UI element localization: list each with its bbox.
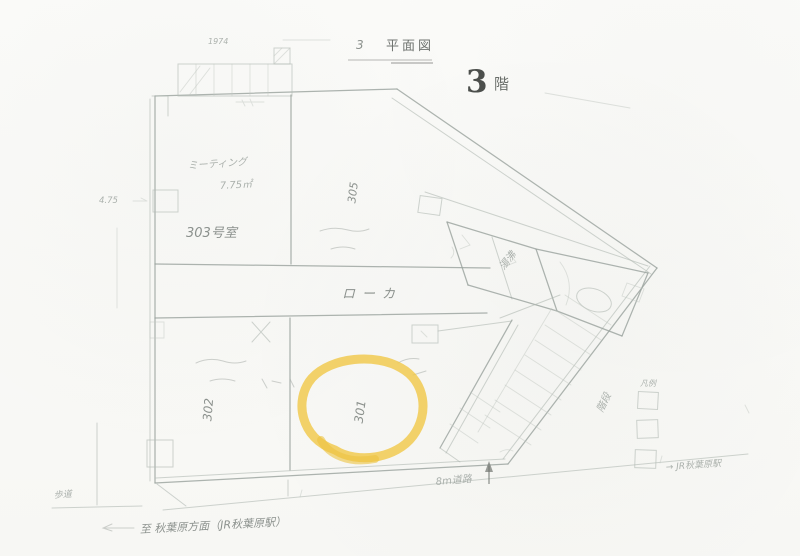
road-width-label: 8m道路 bbox=[435, 473, 473, 488]
entrance-arrow bbox=[485, 450, 513, 484]
text-labels: 3 平面図 3 階 303号室 305 ローカ 302 301 ミーティング 7… bbox=[53, 37, 723, 536]
meeting-note-line2: 7.75㎡ bbox=[220, 178, 255, 192]
road-boundary bbox=[52, 198, 748, 510]
floor-suffix-label: 階 bbox=[494, 75, 509, 93]
legend-boxes bbox=[635, 391, 749, 468]
stairs-label: 階段 bbox=[594, 390, 614, 414]
dimension-left-label: 4.75 bbox=[99, 196, 118, 206]
floor-number-label: 3 bbox=[466, 64, 488, 100]
toilet-bowl-shape bbox=[573, 284, 614, 317]
room-305-label: 305 bbox=[345, 181, 360, 203]
illegible-handwriting-scribbles bbox=[103, 93, 630, 531]
scanned-floor-plan-page: 3 平面図 3 階 303号室 305 ローカ 302 301 ミーティング 7… bbox=[0, 0, 800, 556]
corridor-label: ローカ bbox=[342, 287, 402, 302]
arrow-head-icon bbox=[485, 461, 493, 472]
room-302-label: 302 bbox=[200, 398, 216, 422]
staircase bbox=[440, 295, 611, 462]
floor-plan-drawing: 3 平面図 3 階 303号室 305 ローカ 302 301 ミーティング 7… bbox=[0, 0, 800, 556]
station-note-right: → JR秋葉原駅 bbox=[665, 458, 723, 473]
sidewalk-label: 歩道 bbox=[53, 489, 74, 501]
room-303-label: 303号室 bbox=[186, 225, 239, 241]
meeting-note-line1: ミーティング bbox=[187, 156, 249, 172]
exterior-stair-structure bbox=[178, 40, 330, 106]
section-number-label: 3 bbox=[356, 38, 364, 52]
page-title: 平面図 bbox=[386, 39, 434, 54]
station-note-left: 至 秋葉原方面（JR秋葉原駅） bbox=[139, 515, 286, 536]
interior-walls bbox=[147, 95, 512, 496]
room-301-label: 301 bbox=[352, 399, 369, 424]
dimension-top-label: 1974 bbox=[208, 37, 228, 46]
pantry-label: 湯沸 bbox=[497, 248, 519, 272]
title-underline bbox=[348, 60, 433, 63]
legend-title: 凡例 bbox=[640, 379, 658, 388]
